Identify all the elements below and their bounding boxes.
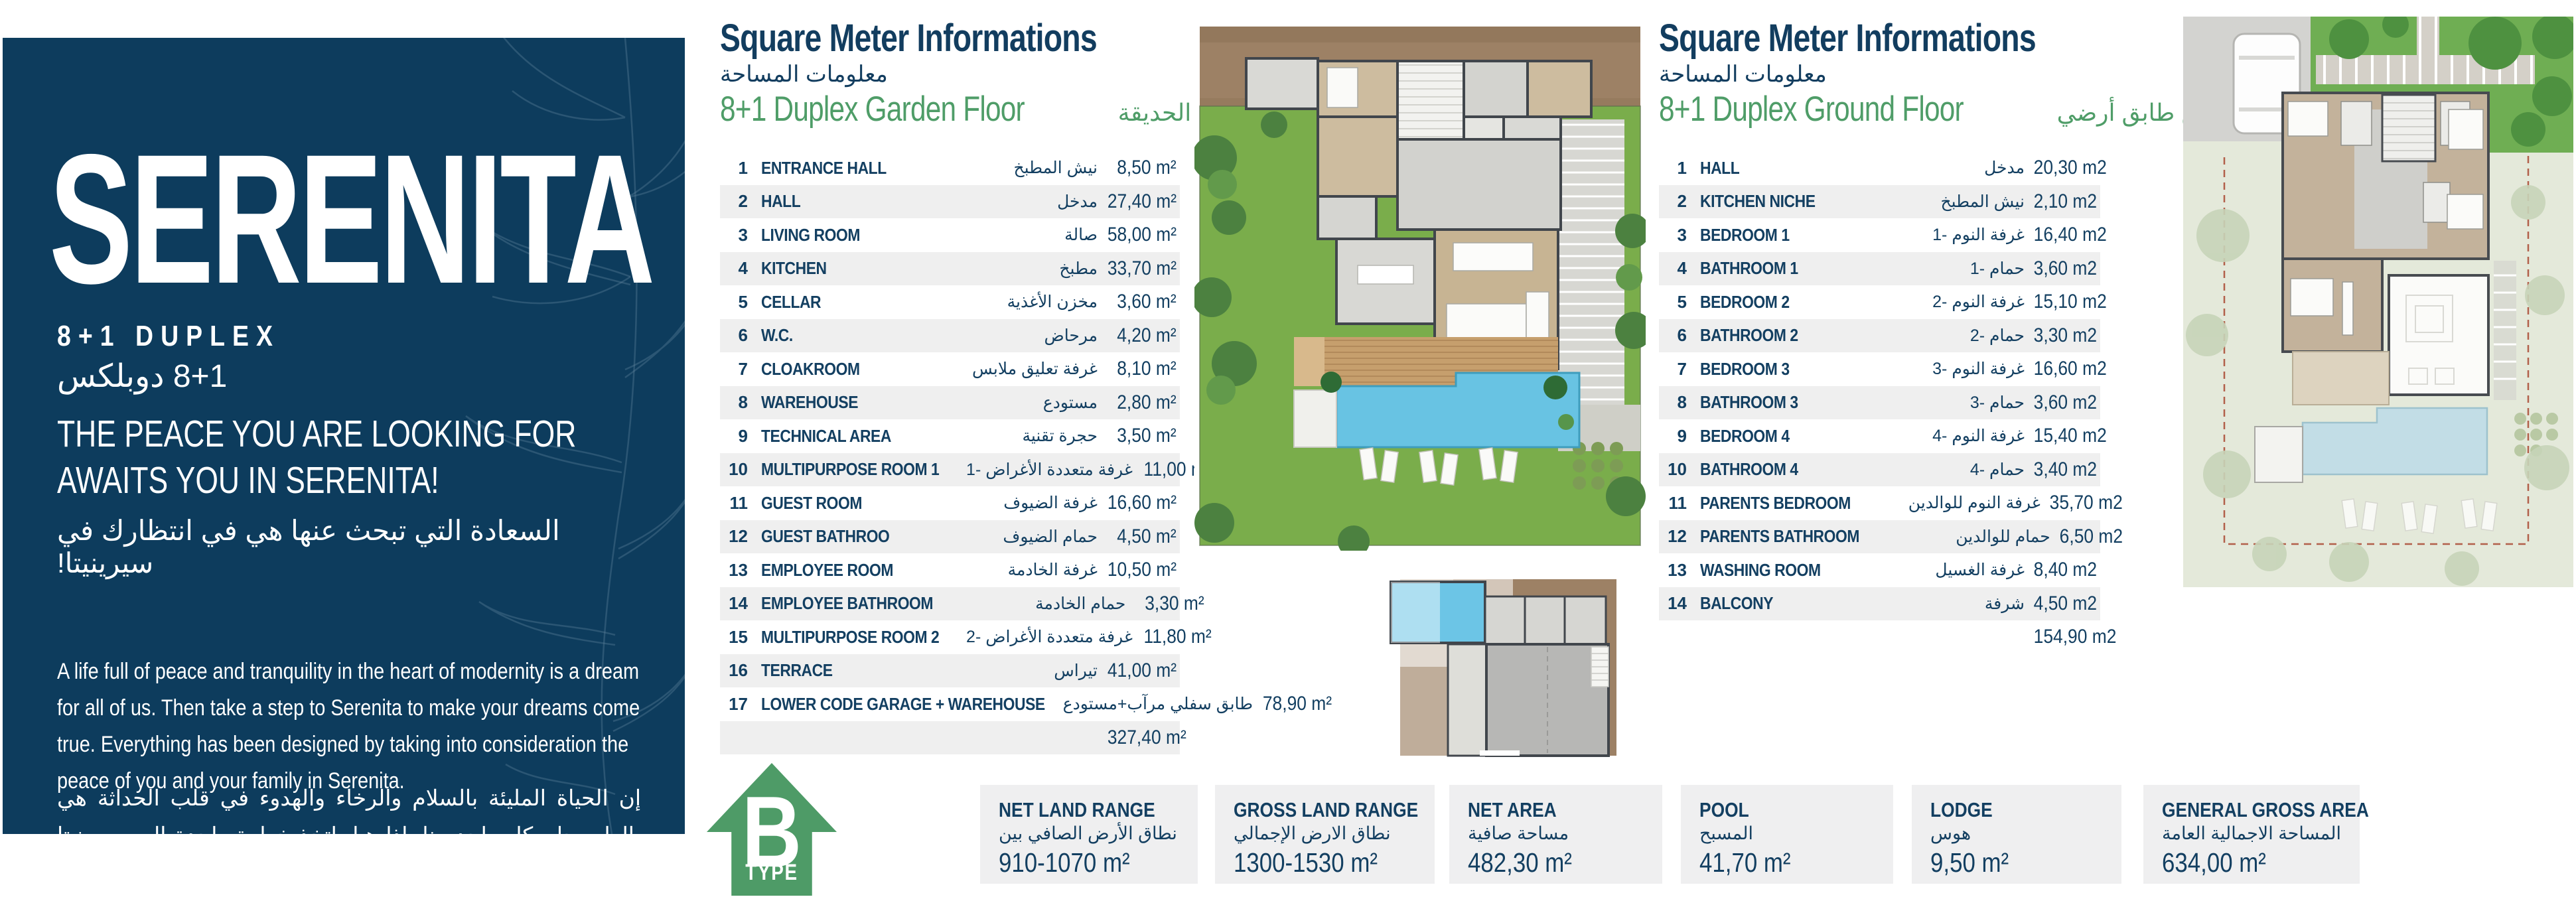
info-box-title-arabic: نطاق الارض الإجمالي (1234, 823, 1391, 844)
info-box-title-arabic: نطاق الأرض الصافي بين (999, 823, 1177, 844)
info-box-value: 41,70 m² (1699, 847, 1791, 878)
info-box-title-arabic: المساحة الاجمالية العامة (2162, 823, 2341, 844)
summary-info-boxes: NET LAND RANGE نطاق الأرض الصافي بين 910… (0, 0, 2576, 901)
info-box-value: 910-1070 m² (999, 847, 1130, 878)
info-box-value: 482,30 m² (1468, 847, 1572, 878)
info-box: NET LAND RANGE نطاق الأرض الصافي بين 910… (980, 785, 1198, 884)
info-box: LODGE هوس 9,50 m² (1912, 785, 2121, 884)
info-box-title: POOL (1699, 798, 1749, 822)
info-box-title: LODGE (1930, 798, 1993, 822)
info-box-value: 634,00 m² (2162, 847, 2266, 878)
info-box-title: GENERAL GROSS AREA (2162, 798, 2369, 822)
info-box-title: GROSS LAND RANGE (1234, 798, 1418, 822)
info-box: NET AREA مساحة صافية 482,30 m² (1449, 785, 1662, 884)
info-box-title-arabic: هوس (1930, 823, 1971, 844)
info-box-value: 1300-1530 m² (1234, 847, 1378, 878)
info-box-title: NET AREA (1468, 798, 1557, 822)
info-box-title: NET LAND RANGE (999, 798, 1155, 822)
info-box-title-arabic: مساحة صافية (1468, 823, 1569, 844)
info-box: GENERAL GROSS AREA المساحة الاجمالية الع… (2143, 785, 2360, 884)
info-box: GROSS LAND RANGE نطاق الارض الإجمالي 130… (1215, 785, 1435, 884)
info-box: POOL المسبح 41,70 m² (1681, 785, 1893, 884)
info-box-value: 9,50 m² (1930, 847, 2009, 878)
info-box-title-arabic: المسبح (1699, 823, 1753, 844)
